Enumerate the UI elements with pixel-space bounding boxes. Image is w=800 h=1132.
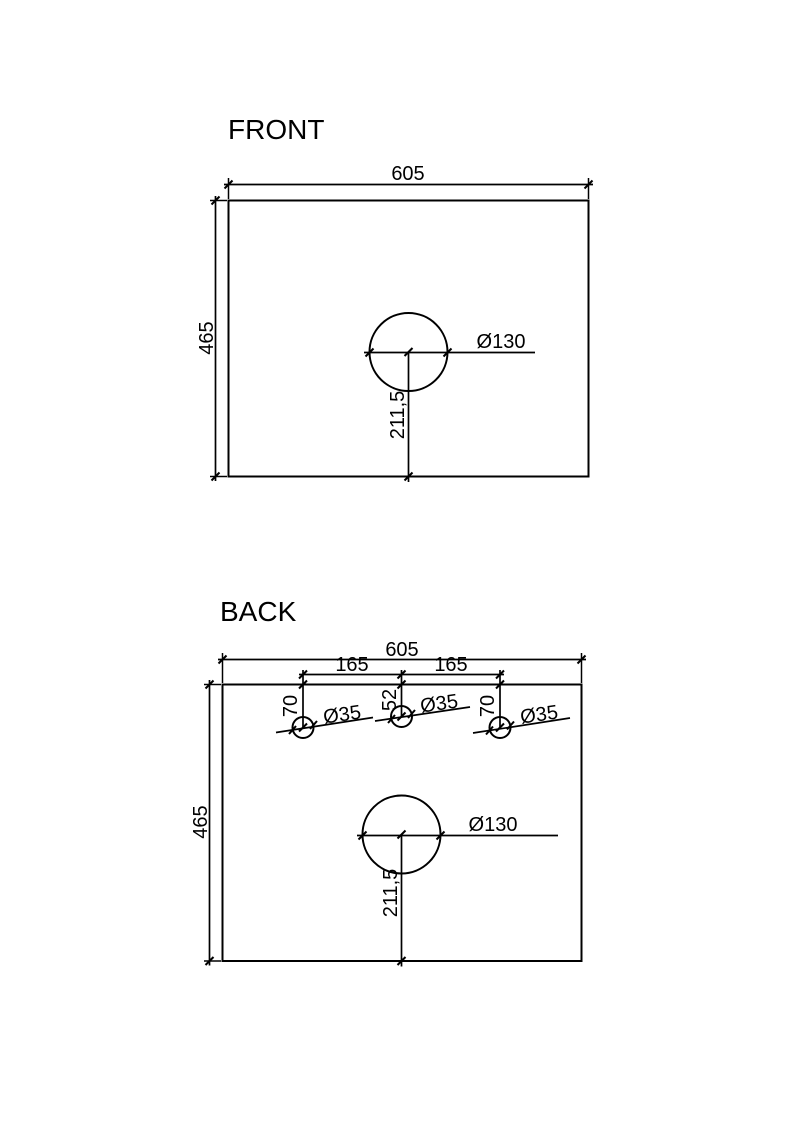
offset-value: 52: [379, 689, 401, 711]
back-view-title: BACK: [220, 596, 297, 627]
back-view: BACK 605 165 165: [190, 596, 586, 967]
front-hole-diameter-dimension: Ø130: [364, 331, 535, 357]
technical-drawing-page: FRONT 605 465 Ø130: [0, 0, 800, 1132]
diameter-value: Ø35: [519, 702, 560, 729]
width-value: 605: [385, 639, 418, 661]
height-value: 465: [196, 321, 218, 354]
hole-offset-value: 211,5: [380, 869, 402, 918]
front-width-dimension: 605: [224, 163, 593, 199]
height-value: 465: [190, 805, 212, 838]
back-hole-offset-dimension: 211,5: [380, 831, 406, 967]
hole-diameter-value: Ø130: [469, 814, 518, 836]
spacing-value-left: 165: [335, 654, 368, 676]
hole-diameter-value: Ø130: [477, 331, 526, 353]
back-height-dimension: 465: [190, 680, 221, 966]
diameter-value: Ø35: [322, 702, 363, 729]
front-hole-offset-dimension: 211,5: [387, 348, 413, 482]
width-value: 605: [391, 163, 424, 185]
back-hole-diameter-dimension: Ø130: [357, 814, 558, 840]
diameter-value: Ø35: [419, 691, 460, 718]
offset-value: 70: [280, 695, 302, 717]
front-view-title: FRONT: [228, 114, 324, 145]
hole-offset-value: 211,5: [387, 391, 409, 440]
offset-value: 70: [477, 695, 499, 717]
front-height-dimension: 465: [196, 196, 227, 481]
spacing-value-right: 165: [434, 654, 467, 676]
front-view: FRONT 605 465 Ø130: [196, 114, 593, 482]
drawing-canvas: FRONT 605 465 Ø130: [0, 0, 800, 1132]
